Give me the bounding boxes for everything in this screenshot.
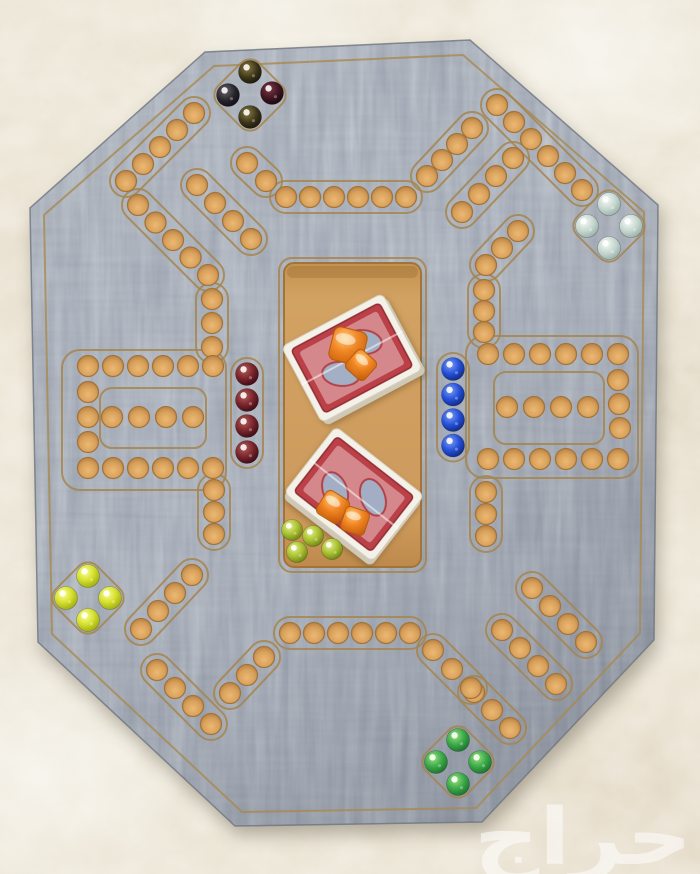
- track-hole: [461, 678, 482, 699]
- track-hole: [530, 344, 551, 365]
- track-hole: [153, 458, 174, 479]
- marble-specular: [294, 532, 297, 535]
- track-hole: [462, 118, 483, 139]
- track-hole: [503, 148, 524, 169]
- track-hole: [504, 344, 525, 365]
- marble-specular: [90, 578, 93, 581]
- track-hole: [486, 166, 507, 187]
- marble-blue[interactable]: [442, 409, 465, 432]
- track-hole: [205, 193, 226, 214]
- track-hole: [204, 502, 225, 523]
- track-hole: [116, 171, 137, 192]
- marble-lime[interactable]: [287, 542, 308, 563]
- tray-top-shadow: [287, 266, 418, 278]
- marble-specular: [315, 538, 318, 541]
- marble-specular: [240, 444, 246, 450]
- track-hole: [187, 175, 208, 196]
- track-hole: [78, 382, 99, 403]
- marble-specular: [249, 428, 252, 431]
- marble-specular: [249, 454, 252, 457]
- marble-dark-red[interactable]: [261, 82, 284, 105]
- track-hole: [150, 137, 171, 158]
- track-hole: [476, 255, 497, 276]
- marble-specular: [243, 64, 249, 70]
- marble-specular: [68, 600, 71, 603]
- marble-specular: [265, 85, 271, 91]
- marble-specular: [59, 590, 65, 596]
- track-hole: [442, 659, 463, 680]
- marble-body: [469, 751, 492, 774]
- track-hole: [372, 187, 393, 208]
- track-hole: [546, 674, 567, 695]
- marble-pale-blue[interactable]: [598, 237, 621, 260]
- track-hole: [556, 344, 577, 365]
- marble-body: [282, 520, 303, 541]
- track-hole: [254, 647, 275, 668]
- track-hole: [508, 221, 529, 242]
- marble-specular: [455, 448, 458, 451]
- marble-specular: [460, 786, 463, 789]
- marble-specular: [589, 228, 592, 231]
- marble-body: [447, 729, 470, 752]
- marble-body: [239, 106, 262, 129]
- marble-green[interactable]: [425, 751, 448, 774]
- track-hole: [145, 212, 166, 233]
- track-hole: [78, 432, 99, 453]
- marble-blue[interactable]: [442, 434, 465, 457]
- track-hole: [417, 166, 438, 187]
- track-hole: [447, 134, 468, 155]
- track-hole: [184, 103, 205, 124]
- track-hole: [474, 280, 495, 301]
- marble-blue[interactable]: [442, 358, 465, 381]
- track-hole: [528, 656, 549, 677]
- marble-body: [236, 363, 259, 386]
- track-hole: [530, 449, 551, 470]
- track-hole: [352, 623, 373, 644]
- track-hole: [572, 180, 593, 201]
- marble-specular: [299, 554, 302, 557]
- track-hole: [500, 718, 521, 739]
- track-hole: [204, 524, 225, 545]
- marble-body: [239, 61, 262, 84]
- marble-specular: [446, 387, 452, 393]
- track-hole: [78, 356, 99, 377]
- track-hole: [131, 619, 152, 640]
- track-hole: [521, 129, 542, 150]
- marble-lime[interactable]: [303, 526, 324, 547]
- marble-specular: [103, 590, 109, 596]
- marble-maroon[interactable]: [236, 363, 259, 386]
- track-hole: [165, 678, 186, 699]
- track-hole: [102, 407, 123, 428]
- marble-body: [303, 526, 324, 547]
- track-hole: [504, 449, 525, 470]
- marble-body: [236, 441, 259, 464]
- track-hole: [223, 211, 244, 232]
- marble-specular: [455, 371, 458, 374]
- marble-specular: [81, 568, 87, 574]
- marble-specular: [90, 622, 93, 625]
- marble-specular: [326, 542, 332, 548]
- marble-specular: [624, 218, 630, 224]
- track-hole: [610, 418, 631, 439]
- track-hole: [128, 195, 149, 216]
- marble-specular: [438, 764, 441, 767]
- track-hole: [608, 344, 629, 365]
- track-hole: [204, 480, 225, 501]
- marble-specular: [429, 754, 435, 760]
- marble-specular: [451, 776, 457, 782]
- marble-body: [217, 84, 240, 107]
- marble-body: [322, 539, 343, 560]
- track-hole: [280, 623, 301, 644]
- track-hole: [576, 632, 597, 653]
- marble-yellow[interactable]: [99, 587, 122, 610]
- track-hole: [540, 596, 561, 617]
- track-hole: [522, 578, 543, 599]
- marble-body: [442, 358, 465, 381]
- marble-dark-olive[interactable]: [239, 61, 262, 84]
- track-hole: [400, 623, 421, 644]
- track-hole: [220, 683, 241, 704]
- marble-specular: [633, 228, 636, 231]
- marble-body: [620, 215, 643, 238]
- marble-maroon[interactable]: [236, 389, 259, 412]
- track-hole: [182, 565, 203, 586]
- marble-body: [236, 389, 259, 412]
- marble-body: [99, 587, 122, 610]
- marble-black[interactable]: [217, 84, 240, 107]
- marble-specular: [230, 97, 233, 100]
- marble-green[interactable]: [447, 773, 470, 796]
- track-hole: [103, 356, 124, 377]
- marble-yellow[interactable]: [55, 587, 78, 610]
- track-hole: [180, 247, 201, 268]
- track-hole: [582, 344, 603, 365]
- track-hole: [237, 153, 258, 174]
- track-hole: [129, 407, 150, 428]
- marble-specular: [611, 250, 614, 253]
- marble-lime[interactable]: [282, 520, 303, 541]
- marble-specular: [243, 109, 249, 115]
- track-hole: [510, 638, 531, 659]
- marble-specular: [334, 551, 337, 554]
- marble-body: [77, 565, 100, 588]
- marble-specular: [602, 196, 608, 202]
- marble-specular: [221, 87, 227, 93]
- marble-blue[interactable]: [442, 383, 465, 406]
- track-hole: [482, 700, 503, 721]
- track-hole: [497, 397, 518, 418]
- marble-body: [598, 193, 621, 216]
- marble-specular: [602, 240, 608, 246]
- marble-pale-blue[interactable]: [620, 215, 643, 238]
- marble-specular: [274, 95, 277, 98]
- track-hole: [396, 187, 417, 208]
- track-hole: [128, 356, 149, 377]
- marble-specular: [249, 402, 252, 405]
- marble-specular: [446, 361, 452, 367]
- track-hole: [608, 449, 629, 470]
- marble-specular: [291, 545, 297, 551]
- marble-specular: [451, 732, 457, 738]
- marble-specular: [446, 438, 452, 444]
- track-hole: [558, 614, 579, 635]
- track-hole: [474, 322, 495, 343]
- marble-lime[interactable]: [322, 539, 343, 560]
- track-hole: [469, 184, 490, 205]
- track-hole: [202, 289, 223, 310]
- track-hole: [376, 623, 397, 644]
- marble-specular: [81, 612, 87, 618]
- marble-dark-olive[interactable]: [239, 106, 262, 129]
- track-hole: [133, 154, 154, 175]
- track-hole: [551, 397, 572, 418]
- track-hole: [423, 640, 444, 661]
- marble-maroon[interactable]: [236, 415, 259, 438]
- marble-specular: [252, 119, 255, 122]
- track-hole: [183, 696, 204, 717]
- track-hole: [128, 458, 149, 479]
- photo-scene: حراج: [0, 0, 700, 874]
- marble-pale-blue[interactable]: [598, 193, 621, 216]
- marble-body: [442, 383, 465, 406]
- marble-specular: [112, 600, 115, 603]
- marble-pale-blue[interactable]: [576, 215, 599, 238]
- track-hole: [202, 313, 223, 334]
- marble-specular: [249, 376, 252, 379]
- marble-body: [55, 587, 78, 610]
- track-hole: [478, 344, 499, 365]
- marble-specular: [286, 523, 292, 529]
- marble-specular: [240, 366, 246, 372]
- track-hole: [328, 623, 349, 644]
- track-hole: [300, 187, 321, 208]
- track-hole: [582, 449, 603, 470]
- track-hole: [78, 458, 99, 479]
- track-hole: [256, 171, 277, 192]
- track-hole: [504, 112, 525, 133]
- track-hole: [348, 187, 369, 208]
- marble-body: [261, 82, 284, 105]
- track-hole: [178, 356, 199, 377]
- game-board-svg: حراج: [0, 0, 700, 874]
- marble-green[interactable]: [469, 751, 492, 774]
- track-hole: [78, 407, 99, 428]
- marble-yellow[interactable]: [77, 565, 100, 588]
- track-hole: [478, 449, 499, 470]
- track-hole: [167, 120, 188, 141]
- marble-yellow[interactable]: [77, 609, 100, 632]
- track-hole: [538, 146, 559, 167]
- track-hole: [474, 301, 495, 322]
- marble-maroon[interactable]: [236, 441, 259, 464]
- track-hole: [201, 714, 222, 735]
- marble-body: [425, 751, 448, 774]
- track-hole: [203, 356, 224, 377]
- track-hole: [492, 620, 513, 641]
- marble-body: [447, 773, 470, 796]
- track-hole: [165, 583, 186, 604]
- marble-body: [287, 542, 308, 563]
- track-hole: [578, 397, 599, 418]
- track-hole: [183, 407, 204, 428]
- track-hole: [452, 202, 473, 223]
- marble-specular: [473, 754, 479, 760]
- marble-body: [442, 409, 465, 432]
- track-hole: [103, 458, 124, 479]
- track-hole: [476, 482, 497, 503]
- track-hole: [524, 397, 545, 418]
- track-hole: [476, 504, 497, 525]
- marble-specular: [460, 742, 463, 745]
- marble-specular: [240, 392, 246, 398]
- marble-body: [77, 609, 100, 632]
- track-hole: [432, 150, 453, 171]
- marble-body: [236, 415, 259, 438]
- marble-specular: [455, 397, 458, 400]
- track-hole: [237, 665, 258, 686]
- marble-specular: [580, 218, 586, 224]
- marble-specular: [455, 422, 458, 425]
- track-hole: [153, 356, 174, 377]
- track-hole: [202, 337, 223, 358]
- track-hole: [147, 660, 168, 681]
- track-hole: [203, 458, 224, 479]
- marble-body: [598, 237, 621, 260]
- marble-body: [442, 434, 465, 457]
- marble-specular: [482, 764, 485, 767]
- watermark: حراج: [474, 793, 692, 874]
- marble-green[interactable]: [447, 729, 470, 752]
- marble-specular: [611, 206, 614, 209]
- marble-specular: [446, 412, 452, 418]
- track-hole: [276, 187, 297, 208]
- track-hole: [148, 601, 169, 622]
- track-hole: [163, 230, 184, 251]
- marble-specular: [252, 74, 255, 77]
- track-hole: [304, 623, 325, 644]
- track-hole: [178, 458, 199, 479]
- marble-specular: [307, 529, 313, 535]
- track-hole: [487, 95, 508, 116]
- track-hole: [324, 187, 345, 208]
- track-hole: [198, 265, 219, 286]
- track-hole: [556, 449, 577, 470]
- track-hole: [492, 238, 513, 259]
- track-hole: [241, 229, 262, 250]
- marble-body: [576, 215, 599, 238]
- track-hole: [609, 394, 630, 415]
- track-hole: [476, 526, 497, 547]
- track-hole: [608, 370, 629, 391]
- track-hole: [555, 163, 576, 184]
- track-hole: [156, 407, 177, 428]
- marble-specular: [240, 418, 246, 424]
